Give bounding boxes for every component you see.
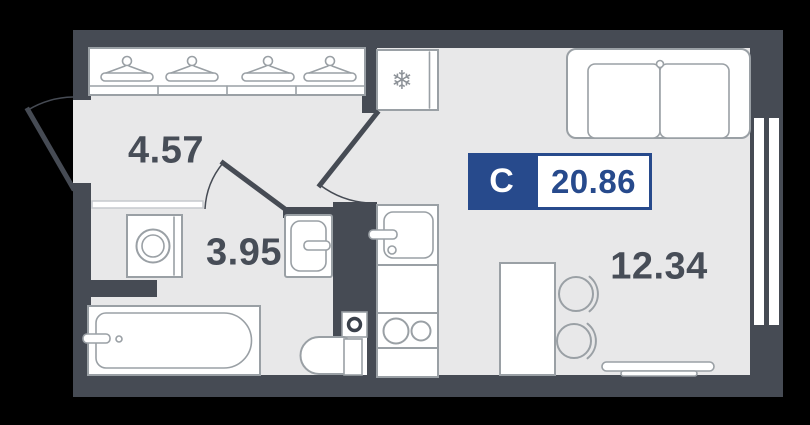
refrigerator: ❄	[377, 50, 438, 110]
floor-plan-drawing: ❄	[0, 0, 810, 425]
bathtub	[83, 306, 260, 375]
stove	[377, 313, 438, 348]
kitchen-sink	[369, 205, 438, 265]
entry-door	[28, 97, 73, 188]
wall-bathroom-kitchen	[333, 202, 377, 312]
water-valve-icon	[349, 319, 361, 331]
kitchen-counter-lower	[377, 348, 438, 377]
toilet-tank	[344, 339, 362, 375]
sofa	[567, 49, 750, 138]
wardrobe	[89, 48, 365, 95]
toilet-bowl	[301, 337, 348, 374]
partition-threshold	[92, 201, 203, 208]
faucet-icon	[304, 241, 330, 250]
washing-machine	[127, 215, 182, 277]
hallway-area-label: 4.57	[128, 130, 204, 173]
total-area-value: 20.86	[535, 153, 652, 210]
total-area-badge: С 20.86	[468, 153, 652, 210]
snowflake-icon: ❄	[391, 66, 413, 96]
faucet-icon	[369, 230, 397, 239]
unit-type-abbr: С	[468, 153, 535, 210]
kitchen-block	[369, 205, 438, 377]
door-swing-arc	[28, 97, 73, 110]
bathroom-area-label: 3.95	[206, 232, 282, 275]
floor-plan: ❄	[0, 0, 810, 425]
kitchen-counter	[377, 265, 438, 313]
wall-stub-bathroom	[91, 280, 157, 297]
table	[500, 263, 555, 375]
bathroom-sink	[285, 215, 332, 277]
faucet-icon	[83, 334, 110, 343]
living-room-area-label: 12.34	[610, 246, 708, 289]
